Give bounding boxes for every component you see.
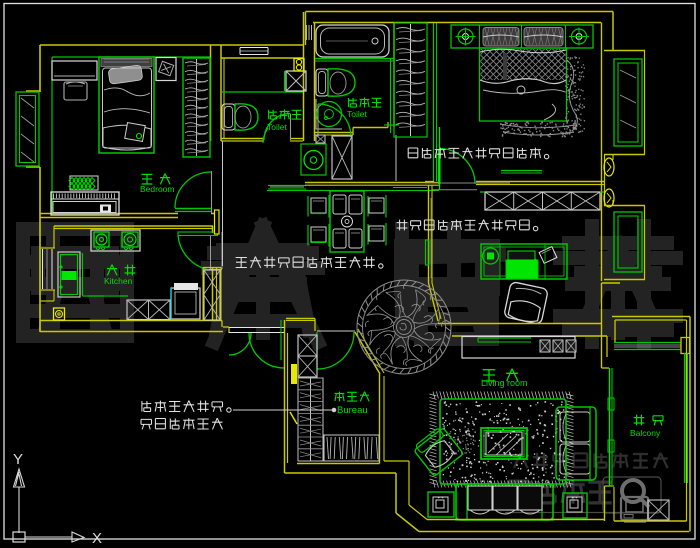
svg-text:Balcony: Balcony [630,428,661,438]
svg-text:X: X [92,530,102,547]
svg-text:Toilet: Toilet [267,122,287,132]
svg-text:Bureau: Bureau [337,405,368,416]
svg-text:Kitchen: Kitchen [104,276,133,286]
svg-text:Living room: Living room [481,378,528,388]
svg-text:Bedroom: Bedroom [140,184,175,194]
svg-text:Y: Y [13,451,23,468]
svg-text:Toilet: Toilet [347,109,367,119]
